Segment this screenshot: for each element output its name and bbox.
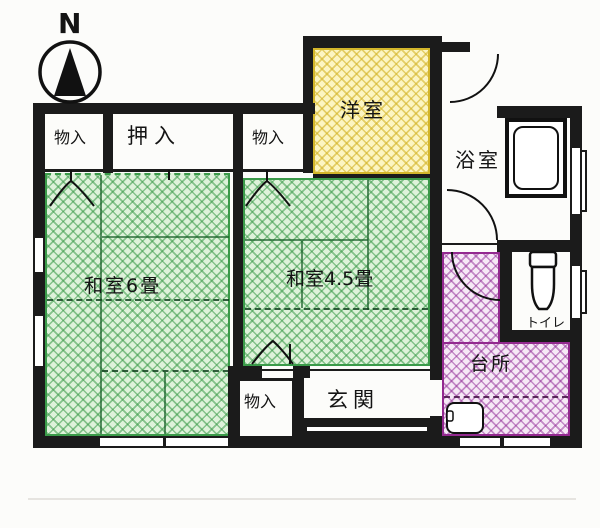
label-storage-top-left: 物入 — [54, 130, 86, 146]
label-youshitsu: 洋室 — [340, 100, 386, 120]
window — [570, 148, 582, 214]
toilet-icon — [530, 252, 556, 309]
door-threshold — [442, 243, 500, 245]
door-threshold — [262, 369, 293, 371]
wall — [103, 113, 113, 173]
tatami-line — [245, 239, 368, 241]
scan-line — [28, 498, 576, 500]
entrance-door-slit — [307, 427, 427, 431]
wall — [292, 418, 442, 444]
wall — [33, 103, 45, 448]
compass-icon — [40, 42, 100, 102]
tatami-line — [245, 308, 428, 310]
closet-front-line — [45, 169, 303, 172]
label-washitsu-45: 和室4.5畳 — [286, 270, 373, 289]
label-storage-bottom: 物入 — [244, 394, 276, 410]
wall — [430, 36, 442, 380]
wall — [293, 366, 310, 378]
bathtub-inner — [513, 126, 559, 190]
window — [33, 238, 45, 272]
kitchen-counter-line — [444, 396, 568, 398]
window — [33, 316, 45, 366]
label-washitsu-6: 和室6畳 — [84, 277, 161, 296]
door-arc — [450, 54, 498, 102]
partition-line — [313, 174, 432, 178]
wall — [500, 240, 512, 342]
window — [504, 436, 550, 448]
label-toilet: トイレ — [526, 317, 565, 330]
window — [570, 266, 582, 318]
tatami-line — [367, 180, 369, 310]
label-storage-top-mid: 物入 — [252, 130, 284, 146]
closet-front-line — [240, 378, 292, 381]
wall — [303, 36, 442, 48]
compass-north-label: N — [58, 10, 81, 38]
wall — [233, 113, 243, 375]
label-bathroom: 浴室 — [455, 150, 501, 170]
wall — [33, 103, 315, 114]
label-genkan: 玄関 — [327, 390, 379, 411]
kitchen-sink — [446, 402, 484, 434]
label-kitchen: 台所 — [470, 355, 512, 374]
door-threshold — [310, 369, 430, 371]
room-kitchen-floor-upper — [442, 252, 500, 344]
wall — [500, 330, 570, 342]
tatami-line — [164, 372, 166, 434]
wall — [228, 366, 240, 448]
window — [100, 436, 163, 448]
tatami-line — [102, 236, 229, 238]
door-arc — [447, 190, 497, 240]
room-washitsu-6-floor — [45, 173, 230, 436]
tatami-line — [47, 299, 229, 301]
wall — [303, 36, 313, 173]
window — [460, 436, 500, 448]
tatami-line — [100, 175, 102, 434]
label-oshiire: 押入 — [127, 126, 181, 147]
floor-plan: N 物入 押入 物入 洋室 浴室 和室6畳 和室4.5畳 トイレ 台所 物入 玄… — [0, 0, 600, 528]
window — [166, 436, 228, 448]
